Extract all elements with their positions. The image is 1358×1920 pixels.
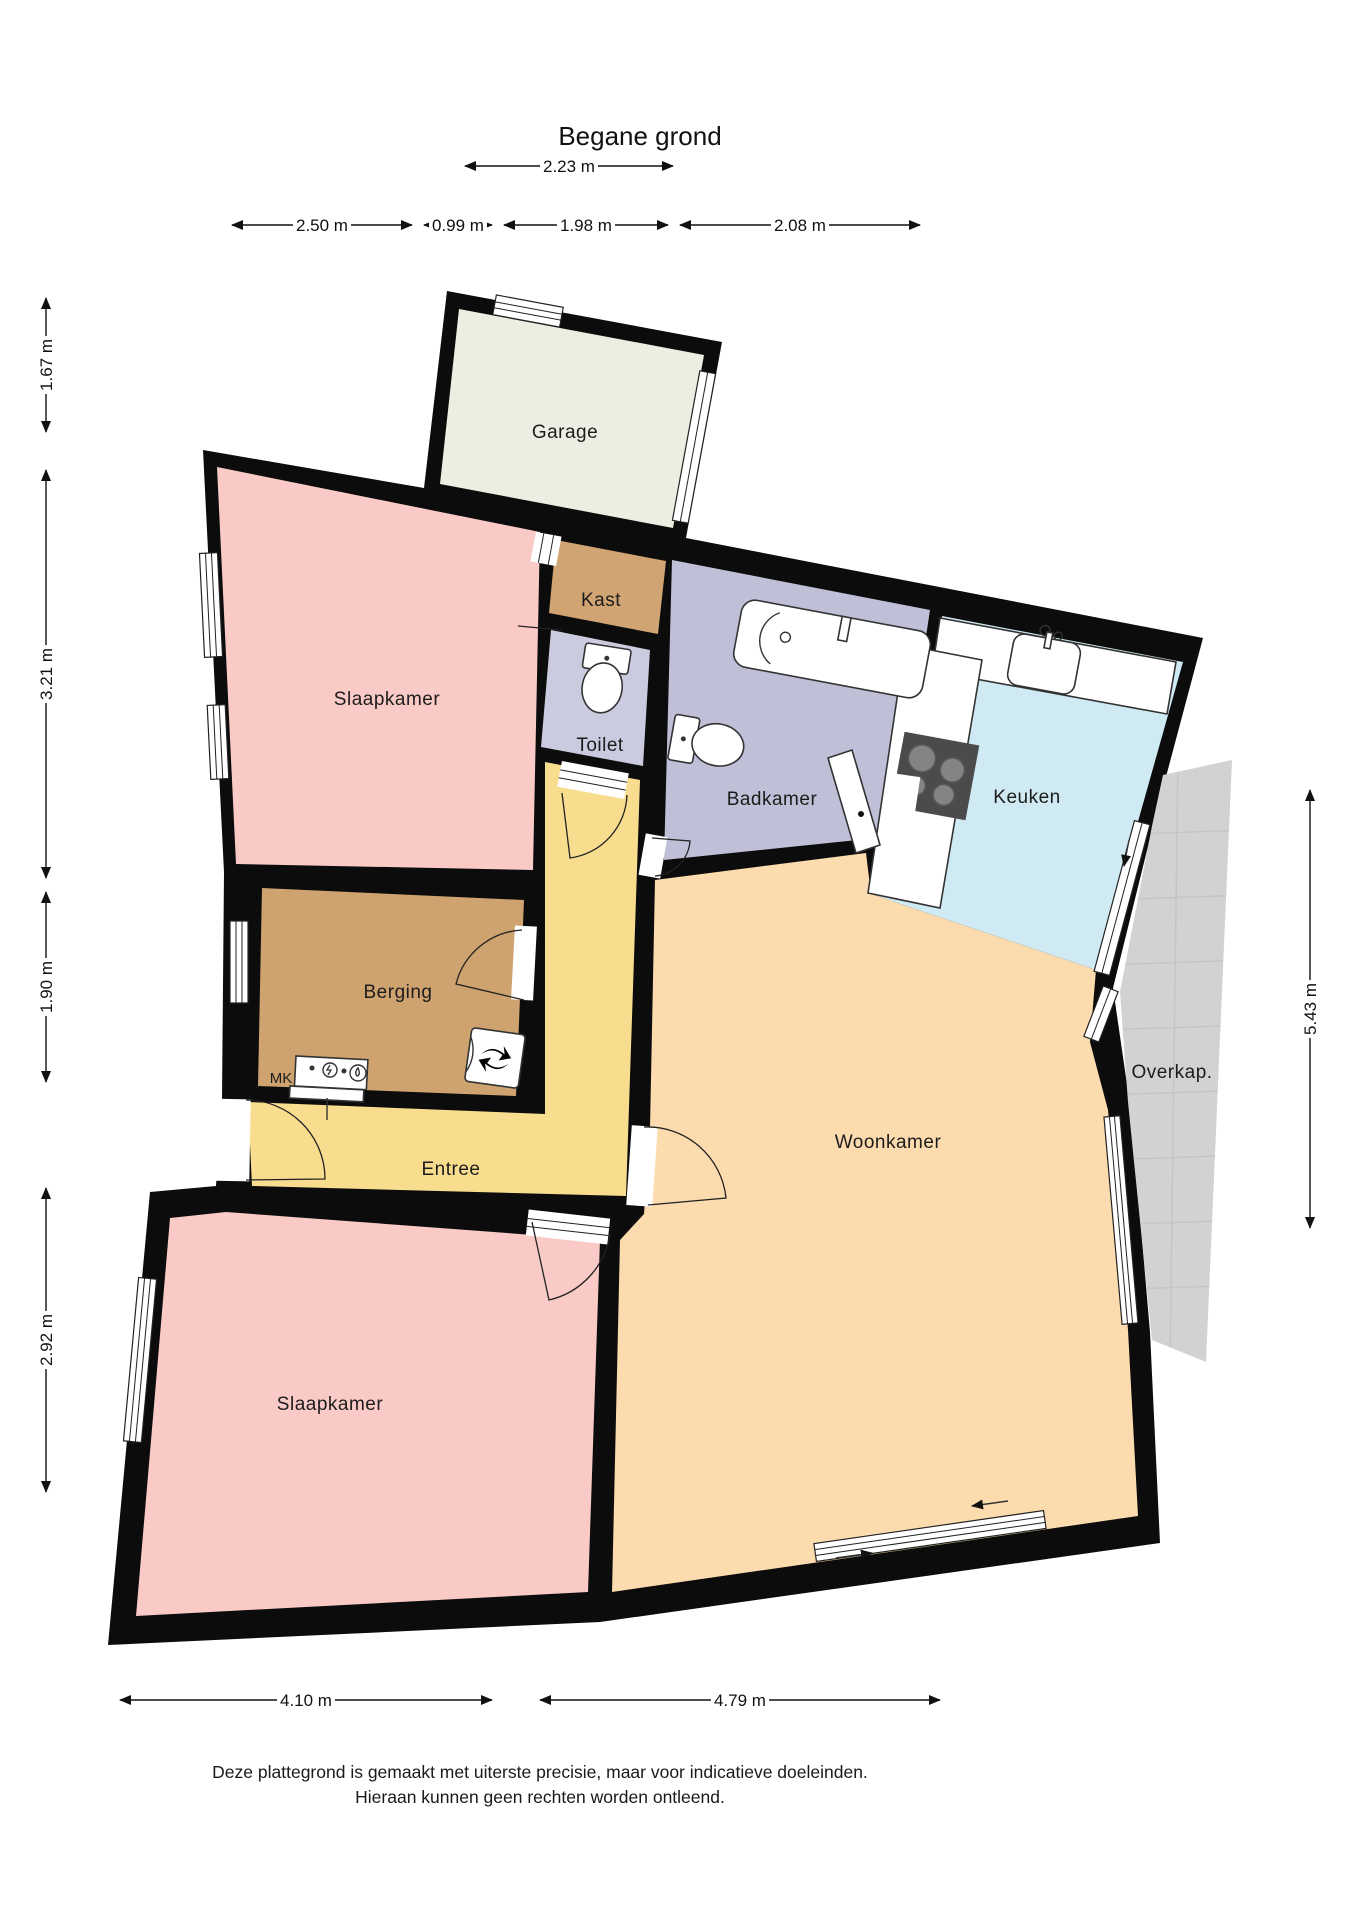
disclaimer-line-2: Hieraan kunnen geen rechten worden ontle… [355,1787,725,1807]
dim-left-1: 1.67 m [35,298,57,432]
svg-text:4.79 m: 4.79 m [714,1691,766,1710]
page-title: Begane grond [558,121,721,151]
room-label-meterkast: MK [270,1070,293,1087]
room-label-kast: Kast [581,590,621,611]
svg-text:2.50 m: 2.50 m [296,216,348,235]
svg-text:2.08 m: 2.08 m [774,216,826,235]
room-label-overkapping: Overkap. [1131,1062,1212,1083]
dim-left-2: 3.21 m [35,470,57,878]
svg-text:2.23 m: 2.23 m [543,157,595,176]
room-woonkamer-floor [612,853,1138,1592]
svg-text:1.67 m: 1.67 m [37,339,56,391]
svg-text:1.98 m: 1.98 m [560,216,612,235]
washing-machine-icon [465,1028,526,1089]
room-label-slaapkamer-onder: Slaapkamer [277,1394,384,1415]
svg-text:4.10 m: 4.10 m [280,1691,332,1710]
door-entree-woonkamer-gap [626,1125,658,1207]
svg-text:0.99 m: 0.99 m [432,216,484,235]
svg-text:5.43 m: 5.43 m [1301,983,1320,1035]
room-label-toilet: Toilet [576,735,624,756]
dim-left-4: 2.92 m [35,1188,57,1492]
svg-text:1.90 m: 1.90 m [37,961,56,1013]
room-label-slaapkamer-boven: Slaapkamer [334,689,441,710]
room-slaapkamer-boven-floor [217,467,540,870]
door-garage-kast [530,532,561,566]
dim-top-row-1: 2.50 m [232,214,412,236]
room-label-badkamer: Badkamer [727,789,818,810]
room-label-berging: Berging [364,982,433,1003]
door-handle-dot [858,811,864,817]
room-label-entree: Entree [422,1159,481,1180]
svg-text:2.92 m: 2.92 m [37,1314,56,1366]
dim-right-1: 5.43 m [1299,790,1321,1228]
dim-top-primary: 2.23 m [465,155,673,177]
window-slaapkamer-boven-2 [207,705,229,780]
room-label-garage: Garage [532,422,598,443]
door-berging-gap [511,925,537,1000]
dim-bottom-2: 4.79 m [540,1689,940,1711]
dim-top-row-4: 2.08 m [680,214,920,236]
front-door-gap [209,1099,250,1182]
floorplan-page: Begane grond [0,0,1358,1920]
dim-top-row-3: 1.98 m [504,214,668,236]
dim-left-3: 1.90 m [35,892,57,1082]
svg-text:3.21 m: 3.21 m [37,648,56,700]
window-berging [230,921,248,1003]
room-label-woonkamer: Woonkamer [835,1132,942,1153]
dim-top-row-2: 0.99 m [424,214,492,236]
disclaimer-line-1: Deze plattegrond is gemaakt met uiterste… [212,1762,868,1782]
dim-bottom-1: 4.10 m [120,1689,492,1711]
floor-plan-canvas: Begane grond [0,0,1358,1920]
room-label-keuken: Keuken [993,787,1060,808]
